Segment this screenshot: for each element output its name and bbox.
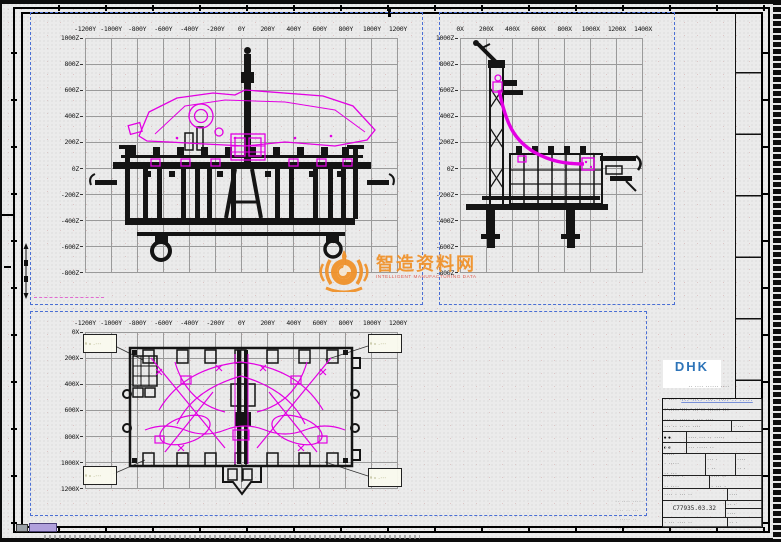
plan-x-axis-labels: 0X200X400X600X800X1000X1200X	[52, 332, 83, 489]
vendor-link-row: ··· ···· ···· ···· ·· ·····	[652, 388, 762, 407]
screen-edge-top	[0, 0, 781, 4]
tb-cell: ·· ·	[737, 467, 748, 471]
coord-line: Z = +···	[370, 351, 383, 353]
tb-symbol-cell: ◐ ◐	[664, 446, 674, 450]
tb-cell: · ··· ·	[711, 484, 734, 487]
side-x-axis-labels: 0X200X400X600X800X1000X1200X1400X	[460, 25, 643, 33]
coord-line: X = +···	[85, 334, 98, 336]
plan-view-drawing	[85, 332, 398, 510]
cad-paperspace-screenshot: { "views": { "front": { "y_labels": ["-1…	[0, 0, 781, 542]
zone-ticks-left	[11, 7, 17, 529]
fold-mark-left2	[4, 266, 11, 268]
tb-cell: ··· ·	[707, 457, 719, 461]
fold-mark-left	[2, 214, 14, 216]
margin-annotation	[20, 240, 32, 302]
tb-symbol-cell: ● ●	[664, 435, 674, 439]
coord-line: X = +···	[85, 466, 98, 468]
tb-cell: ····	[727, 511, 736, 515]
tb-cell: ···· · ··· ··	[664, 492, 692, 496]
front-y-axis-labels: -1200Y-1000Y-800Y-600Y-400Y-200Y0Y200Y40…	[85, 25, 398, 33]
tb-cell: ·· ····	[664, 484, 684, 487]
right-ruler-strip[interactable]	[773, 0, 781, 542]
vendor-logo-text: DHK	[663, 360, 721, 374]
stamp-line: ·· ···· ·····	[615, 499, 637, 503]
tb-cell: ····	[737, 457, 748, 461]
revision-column	[735, 12, 762, 398]
coord-line: X = +···	[370, 468, 383, 470]
tb-cell: ····	[729, 492, 744, 496]
tb-note: · ····· ···· ··· ·· ······ ···	[664, 410, 708, 412]
coord-line: X = +···	[370, 334, 383, 336]
tb-cell: ·· ···	[664, 471, 683, 474]
stamp-line: · ····· ··	[615, 518, 637, 522]
stamp-line: ···· ·· ···	[615, 508, 637, 512]
coord-box-top-right: X = +···Y = -···Z = +···	[368, 334, 402, 353]
coord-box-bottom-right: X = +···Y = -···Z = +···	[368, 468, 402, 487]
tb-cell: ··· ··· ·	[664, 476, 684, 479]
screen-edge-left	[0, 0, 2, 542]
tb-cell: ···· ··· ·· ·····	[688, 435, 722, 439]
mini-widget-button[interactable]	[16, 524, 28, 532]
side-z-axis-labels: 1000Z800Z600Z400Z200Z0Z-200Z-400Z-600Z-8…	[427, 38, 458, 273]
tb-cell: · ···	[733, 424, 746, 428]
coord-line: Y = -···	[85, 341, 98, 345]
tb-cell: · ··	[707, 467, 719, 471]
coord-box-bottom-left: X = +···Y = -···Z = +···	[83, 466, 117, 485]
drawing-number: C77935.03.32	[663, 501, 726, 517]
tb-cell: · ·····	[664, 462, 683, 466]
tb-cell: ··· ·· ·· ·· ····	[664, 424, 694, 428]
vendor-logo-box: DHK ·· ···· ······ ····	[663, 360, 721, 388]
plan-y-axis-labels: -1200Y-1000Y-800Y-600Y-400Y-200Y0Y200Y40…	[85, 319, 398, 327]
zone-ticks-bottom	[13, 527, 770, 533]
tb-note: ··· ·· ····· · ··· ····	[664, 418, 708, 420]
side-view-drawing	[460, 38, 643, 273]
stamp-line: ··· ··	[615, 527, 637, 531]
coord-line: Y = -···	[85, 473, 98, 477]
mini-widget-tab[interactable]	[29, 523, 57, 532]
front-z-axis-labels: 1000Z800Z600Z400Z200Z0Z-200Z-400Z-600Z-8…	[52, 38, 83, 273]
title-block: · ···· ··· ····· ·· ··· ······· ·· ··· ·…	[662, 398, 763, 528]
tb-cell: ·· ·	[727, 502, 736, 506]
magenta-guide-dash	[34, 297, 104, 298]
cutoff-text-strip	[44, 535, 420, 539]
zone-ticks-right	[763, 7, 769, 529]
coord-line: Z = +···	[85, 483, 98, 485]
tb-cell: ·· ·	[729, 520, 744, 524]
front-view-drawing	[85, 38, 398, 273]
tb-cell: ··· ····· ··	[688, 446, 722, 450]
coord-line: Z = +···	[85, 351, 98, 353]
coord-line: Y = -···	[370, 475, 383, 479]
coord-box-top-left: X = +···Y = -···Z = +···	[83, 334, 117, 353]
coord-line: Y = -···	[370, 341, 383, 345]
footer-stamp: ·· ···· ········· ·· ···· ····· ····· ··	[615, 505, 663, 525]
coord-line: Z = +···	[370, 485, 383, 487]
tb-cell: ·····	[664, 454, 683, 457]
tb-cell: · ··· ···· ··	[664, 520, 692, 524]
tb-cell: ···· ··	[711, 476, 734, 479]
zone-ticks-top	[13, 5, 770, 11]
vendor-link-text[interactable]: ··· ···· ···· ···· ·· ·····	[681, 398, 753, 403]
